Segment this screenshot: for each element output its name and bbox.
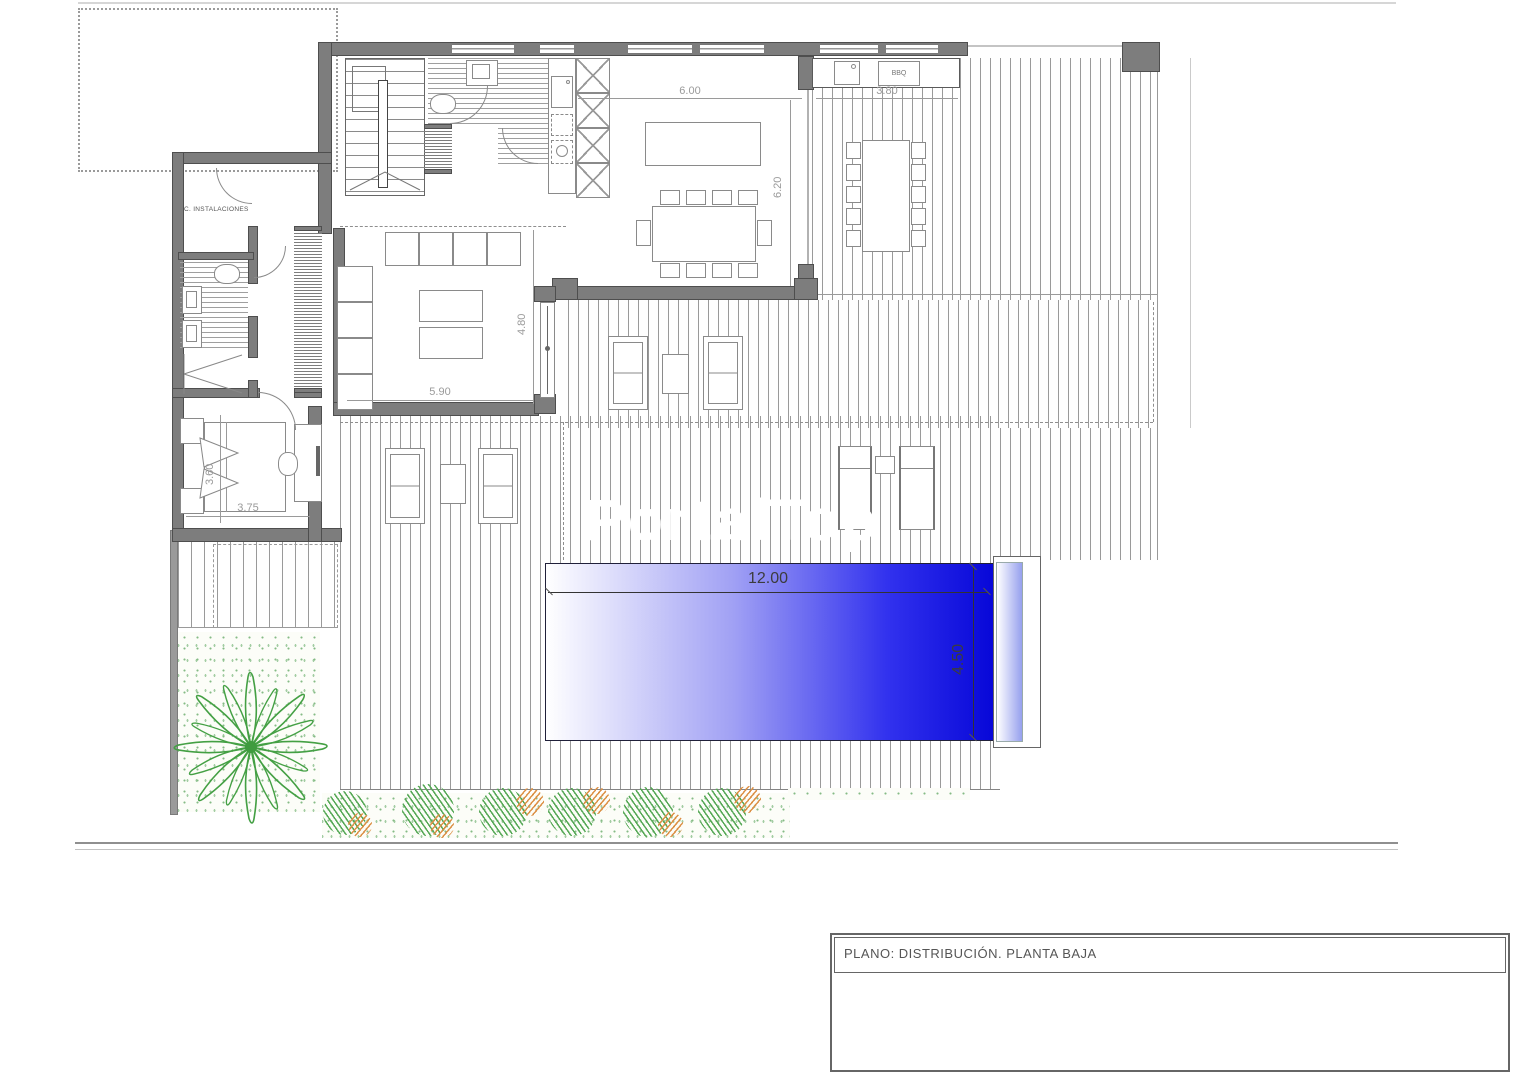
watermark: PortalTop: [586, 487, 879, 554]
dim-line: [578, 98, 802, 99]
chair: [911, 164, 926, 181]
window: [628, 44, 692, 54]
plan-title: PLANO: DISTRIBUCIÓN. PLANTA BAJA: [844, 946, 1097, 961]
site-boundary-bottom2: [75, 849, 1398, 850]
window: [700, 44, 764, 54]
sofa-cushion: [487, 232, 521, 266]
chair: [911, 208, 926, 225]
site-boundary-bottom: [75, 842, 1398, 844]
shrub-orange-icon: [348, 813, 372, 837]
sofa-cushion: [337, 266, 373, 302]
sun-lounger-headline: [840, 468, 870, 469]
dim-line: [347, 400, 533, 401]
sofa-cushion: [419, 232, 453, 266]
lounge-void-dashed: [340, 226, 566, 227]
shrub-orange-icon: [583, 787, 610, 814]
terrace-top-edge-line: [818, 294, 1158, 295]
infinity-edge-strip: [996, 562, 1023, 742]
site-boundary-top: [78, 2, 1396, 4]
pool-dim-line-width: [973, 566, 974, 738]
coffee-table: [419, 327, 483, 359]
outdoor-sofa-cushion: [613, 342, 643, 404]
kitchen-width-dim: 6.00: [578, 85, 802, 97]
window: [820, 44, 878, 54]
fence-line-right: [1190, 58, 1191, 428]
deck-right-extension: [1000, 428, 1158, 560]
outdoor-sink: [834, 61, 860, 85]
window: [540, 44, 574, 54]
wardrobe: [294, 230, 322, 388]
toilet: [214, 264, 240, 284]
pool-width-dim: 4.50: [950, 644, 968, 675]
oven-ring: [556, 145, 568, 157]
sink-basin: [186, 291, 197, 308]
wall-left-upper: [318, 42, 332, 234]
roof-overhang-dashed-left: [563, 422, 564, 560]
chair: [846, 186, 861, 203]
wall-entry-top: [172, 152, 332, 164]
chair: [660, 190, 680, 205]
sofa-cushion: [337, 302, 373, 338]
shrub-orange-icon: [734, 786, 761, 813]
palm-tree-icon: [172, 668, 330, 826]
chair: [686, 263, 706, 278]
chair: [712, 263, 732, 278]
pool-dim-line-length: [548, 592, 988, 593]
staircase-break-line: [346, 166, 424, 194]
bedroom-width-dim: 3.75: [186, 502, 310, 514]
roof-overhang-dashed-line: [340, 422, 1153, 423]
wardrobe-cap: [294, 388, 322, 393]
side-table: [875, 456, 895, 474]
chair: [757, 220, 772, 246]
desk-chair: [278, 452, 298, 476]
bedroom-depth-dim: 3.60: [204, 464, 216, 485]
sink-basin: [472, 64, 490, 79]
floor-plan-canvas: BBQ C. INSTALACIONES: [0, 0, 1522, 1080]
window: [886, 44, 938, 54]
chair: [846, 230, 861, 247]
wardrobe-cap: [294, 226, 322, 231]
sun-lounger-headline: [901, 468, 933, 469]
chair: [846, 164, 861, 181]
chair: [846, 208, 861, 225]
dim-line: [533, 230, 534, 404]
lounge-depth-dim: 4.80: [516, 314, 528, 335]
appliance-dashed: [551, 114, 573, 136]
wall-mid: [556, 286, 818, 300]
chair: [738, 263, 758, 278]
closet-cap: [424, 124, 452, 129]
shrub-orange-icon: [430, 814, 454, 838]
wall-hall-v3: [248, 380, 258, 398]
dining-table: [652, 206, 756, 262]
tall-cabinet: [576, 128, 610, 163]
outdoor-coffee-table: [662, 354, 689, 394]
glass-kitchen-right: [807, 90, 809, 264]
outdoor-sofa-cushion: [708, 342, 738, 404]
sofa-cushion: [385, 232, 419, 266]
chair: [846, 142, 861, 159]
door-arc: [216, 168, 252, 204]
swimming-pool: [545, 563, 995, 741]
outdoor-coffee-table: [440, 464, 466, 504]
deck-mid-terrace: [568, 300, 1158, 428]
dim-line: [790, 100, 791, 286]
pool-length-dim: 12.00: [548, 570, 988, 588]
kitchen-island: [645, 122, 761, 166]
outdoor-sofa-cushion: [483, 454, 513, 518]
sink-basin: [186, 325, 197, 342]
chair: [911, 186, 926, 203]
shrub-orange-icon: [516, 788, 544, 816]
wall-installations-bottom: [178, 252, 254, 260]
wall-slider-stub-top: [534, 286, 556, 302]
lounge-width-dim: 5.90: [347, 386, 533, 398]
planting-strip-right: [788, 788, 970, 800]
chair: [636, 220, 651, 246]
deck-top-right-b: [960, 58, 1158, 300]
wall-mid-block-right: [794, 278, 818, 300]
dim-line: [816, 98, 958, 99]
coffee-table: [419, 290, 483, 322]
bbq-unit: BBQ: [878, 61, 920, 86]
chair: [911, 230, 926, 247]
sliding-door-handle: [545, 346, 550, 351]
window: [452, 44, 514, 54]
outdoor-kitchen-width-dim: 3.80: [816, 85, 958, 97]
tall-cabinet: [576, 163, 610, 198]
sofa-cushion: [453, 232, 487, 266]
chair: [712, 190, 732, 205]
chair: [738, 190, 758, 205]
chair: [686, 190, 706, 205]
closet-cap: [424, 169, 452, 174]
outdoor-dining-table: [862, 140, 910, 252]
closet: [424, 128, 452, 170]
chair: [911, 142, 926, 159]
kitchen-depth-dim: 6.20: [772, 177, 784, 198]
shrub-orange-icon: [658, 812, 683, 837]
dim-line: [186, 516, 310, 517]
roof-overhang-dashed-right: [1153, 302, 1154, 422]
bbq-label: BBQ: [892, 70, 907, 77]
door-arc: [258, 392, 296, 430]
deck-bedroom-dashed-box: [213, 544, 338, 628]
installations-label: C. INSTALACIONES: [184, 206, 249, 213]
outdoor-sofa-cushion: [390, 454, 420, 518]
desk-monitor: [316, 446, 320, 476]
shower: [182, 352, 246, 396]
plot-dotted-outline: [78, 8, 338, 172]
wall-corner-top-right: [1122, 42, 1160, 72]
fence-line-top: [968, 45, 1124, 47]
wall-hall-v2: [248, 316, 258, 358]
outdoor-sink-dot: [851, 64, 856, 69]
door-arc: [254, 246, 286, 278]
sofa-cushion: [337, 338, 373, 374]
sun-lounger: [899, 446, 935, 530]
chair: [660, 263, 680, 278]
fridge-dot: [566, 80, 570, 84]
